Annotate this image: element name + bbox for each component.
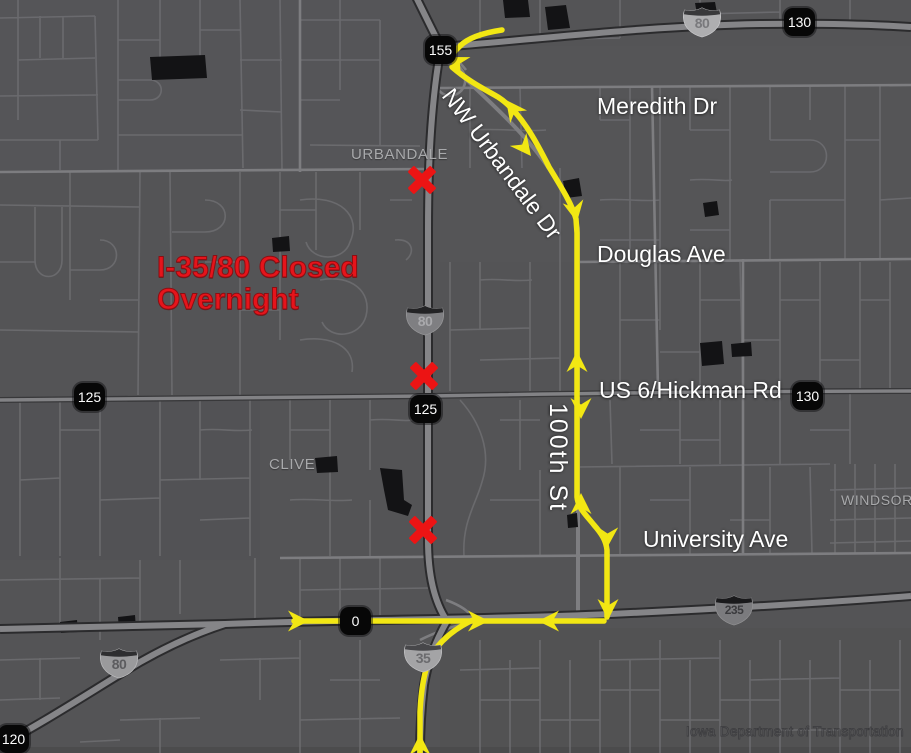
closure-notice: I-35/80 Closed Overnight [157,252,359,316]
interstate-shield-80-north: 80 [683,6,721,38]
exit-marker-125-west: 125 [74,383,105,411]
exit-marker-120: 120 [0,725,29,753]
detour-map-canvas: Meredith Dr Douglas Ave US 6/Hickman Rd … [0,0,911,753]
exit-marker-130-north: 130 [784,8,815,36]
exit-marker-125-mid: 125 [410,395,441,423]
interstate-shield-80-mid: 80 [406,304,444,336]
city-label-urbandale: URBANDALE [351,146,448,163]
street-label-douglas: Douglas Ave [597,242,726,267]
exit-marker-155: 155 [425,36,456,64]
street-label-university: University Ave [643,527,788,552]
watermark: Iowa Department of Transportation [686,724,904,739]
closure-notice-line2: Overnight [157,284,359,316]
city-label-clive: CLIVE [269,456,315,473]
street-label-meredith: Meredith Dr [597,94,717,119]
closure-notice-line1: I-35/80 Closed [157,252,359,284]
street-label-100th-st: 100th St [544,403,572,512]
interstate-shield-235: 235 [715,594,753,626]
interstate-shield-80-southwest: 80 [100,647,138,679]
exit-marker-130-east: 130 [792,382,823,410]
exit-marker-0: 0 [340,607,371,635]
street-label-hickman: US 6/Hickman Rd [599,378,782,403]
interstate-shield-35: 35 [404,641,442,673]
city-label-windsor-heights: WINDSOR H [841,492,911,508]
